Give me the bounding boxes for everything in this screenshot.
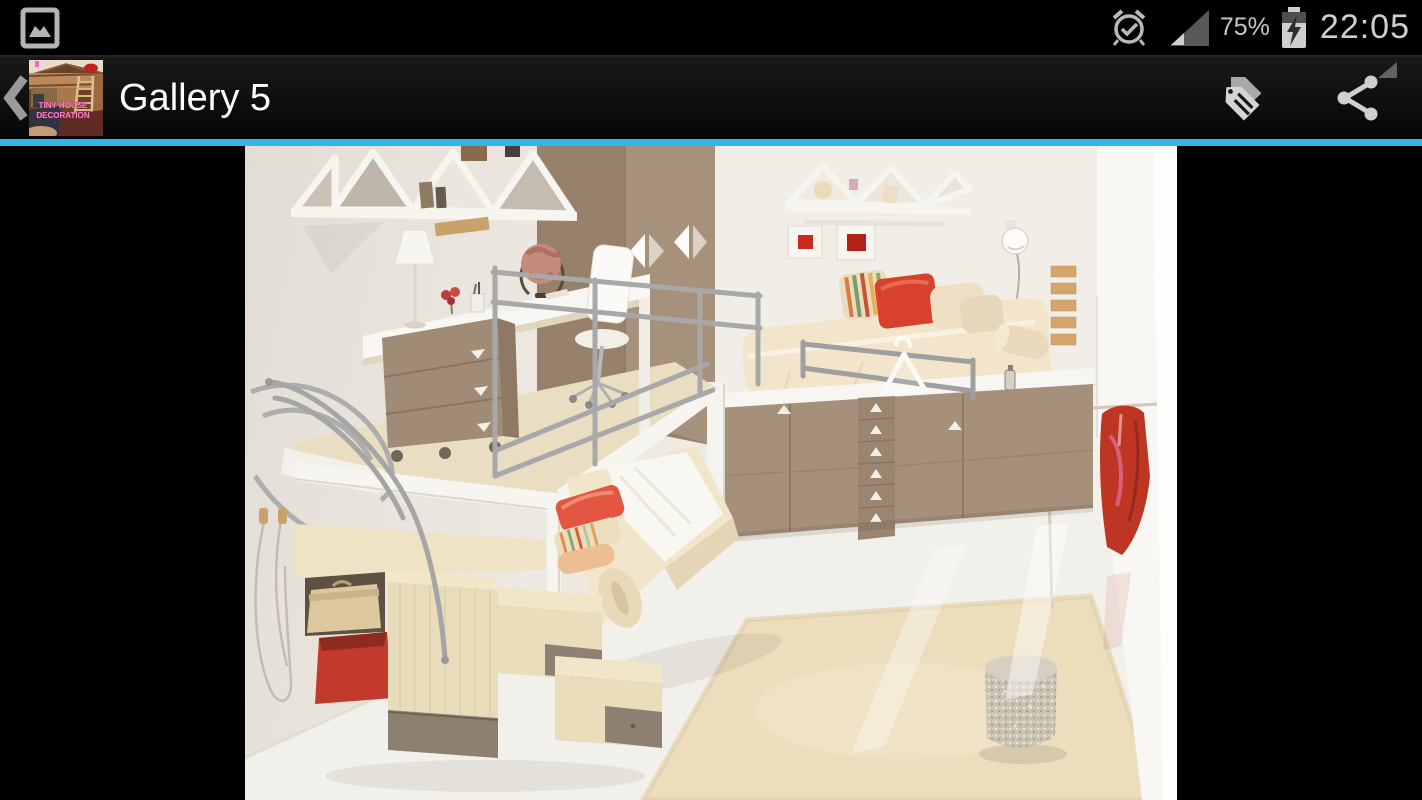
status-bar[interactable]: 75% 22:05 <box>0 0 1422 57</box>
thumbnail-text-line1: TINY HOUSE <box>39 101 88 110</box>
edit-tags-button[interactable] <box>1214 72 1266 124</box>
page-title: Gallery 5 <box>119 77 1214 120</box>
battery-percent-label: 75% <box>1220 13 1270 42</box>
action-bar: TINY HOUSE DECORATION Gallery 5 <box>0 57 1422 139</box>
signal-strength-icon <box>1168 9 1210 47</box>
photo-viewer <box>0 146 1422 800</box>
image-notification-icon <box>20 7 60 49</box>
thumbnail-text-line2: DECORATION <box>36 111 89 120</box>
share-overflow-corner-triangle <box>1378 62 1397 78</box>
share-icon <box>1334 72 1386 124</box>
back-chevron-icon <box>2 72 28 124</box>
gallery-photo[interactable] <box>245 146 1177 800</box>
up-button[interactable]: TINY HOUSE DECORATION <box>0 57 103 139</box>
edit-tags-icon <box>1214 72 1266 124</box>
app-thumbnail: TINY HOUSE DECORATION <box>29 60 103 136</box>
actionbar-accent-underline <box>0 139 1422 146</box>
battery-charging-icon <box>1278 6 1310 50</box>
share-button[interactable] <box>1334 72 1386 124</box>
alarm-icon <box>1108 6 1150 50</box>
clock-label: 22:05 <box>1320 8 1410 47</box>
android-screen: 75% 22:05 <box>0 0 1422 800</box>
